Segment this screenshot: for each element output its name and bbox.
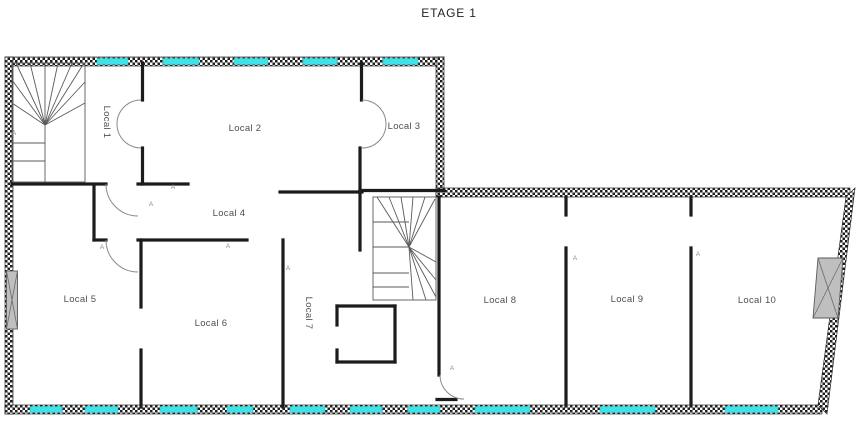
marker-a: A: [450, 365, 455, 372]
marker-a: A: [100, 244, 105, 251]
staircase-top-left: [12, 63, 85, 182]
wall-right-left-block: [436, 57, 444, 197]
double-door-local1-leaf: [117, 100, 141, 124]
shafts: [7, 258, 844, 329]
plan-title: ETAGE 1: [421, 6, 476, 20]
door-corridor-lower: [106, 240, 138, 272]
room-label-local-9: Local 9: [611, 294, 644, 305]
marker-a: A: [286, 265, 291, 272]
marker-a: A: [226, 243, 231, 250]
window: [600, 407, 655, 413]
window: [160, 407, 197, 413]
window: [303, 59, 337, 65]
marker-a: A: [12, 130, 17, 137]
staircase-middle: [373, 197, 436, 300]
room-label-local-7: Local 7: [303, 297, 314, 330]
window: [350, 407, 382, 413]
window: [725, 407, 778, 413]
window: [97, 59, 128, 65]
door-local8: [440, 375, 464, 399]
marker-a: A: [149, 201, 154, 208]
room-label-local-1: Local 1: [101, 106, 112, 139]
marker-a: A: [696, 251, 701, 258]
window: [163, 59, 199, 65]
double-door-local3-leaf: [362, 100, 386, 124]
window: [290, 407, 325, 413]
exterior-walls: [5, 57, 855, 414]
window: [475, 407, 530, 413]
room-label-local-10: Local 10: [738, 295, 776, 306]
room-label-local-5: Local 5: [64, 294, 97, 305]
window: [30, 407, 62, 413]
window: [408, 407, 440, 413]
room-label-local-8: Local 8: [484, 295, 517, 306]
double-door-local1-leaf: [117, 124, 141, 148]
interior-walls: [12, 63, 691, 407]
marker-a: A: [573, 255, 578, 262]
room-label-local-2: Local 2: [229, 123, 262, 134]
door-corridor-upper: [106, 184, 138, 216]
floor-plan-canvas: ETAGE 1: [0, 0, 858, 440]
double-door-local3-leaf: [362, 124, 386, 148]
room-labels: Local 1 Local 2 Local 3 Local 4 Local 5 …: [64, 106, 777, 330]
floor-plan-page: ETAGE 1: [0, 0, 858, 440]
wall-top-right-wing: [436, 188, 850, 197]
annotation-markers: A A A A A A A A A: [12, 130, 701, 372]
window: [383, 59, 418, 65]
room-label-local-4: Local 4: [213, 208, 246, 219]
window: [234, 59, 268, 65]
room-label-local-3: Local 3: [388, 121, 421, 132]
window: [85, 407, 118, 413]
room-label-local-6: Local 6: [195, 318, 228, 329]
marker-a: A: [171, 184, 176, 191]
window: [227, 407, 253, 413]
shaft-left-wall: [7, 271, 18, 329]
shaft-right-wall: [813, 258, 843, 318]
